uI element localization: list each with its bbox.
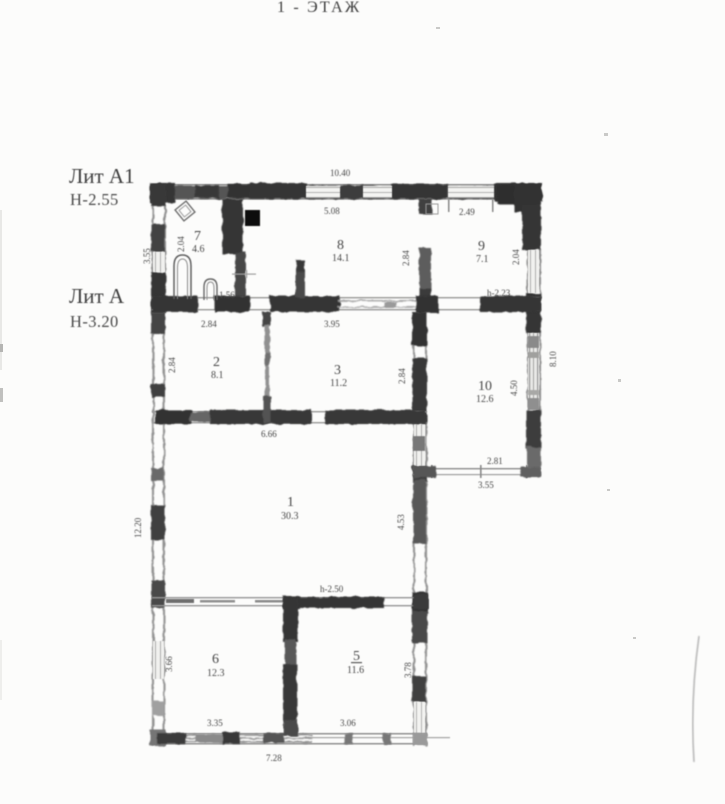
svg-text:8: 8 — [337, 238, 344, 253]
svg-text:10: 10 — [478, 379, 492, 394]
svg-text:30.3: 30.3 — [281, 511, 299, 522]
svg-text:2.81: 2.81 — [487, 456, 503, 466]
svg-text:Н-3.20: Н-3.20 — [70, 312, 119, 331]
svg-text:6: 6 — [212, 652, 219, 667]
svg-text:2.84: 2.84 — [401, 250, 411, 266]
svg-text:3.78: 3.78 — [403, 662, 413, 678]
svg-text:3.35: 3.35 — [207, 718, 223, 728]
svg-text:3.55: 3.55 — [142, 248, 152, 264]
svg-text:4.50: 4.50 — [509, 380, 519, 396]
svg-text:2.84: 2.84 — [397, 368, 407, 384]
svg-text:2.49: 2.49 — [459, 207, 475, 217]
svg-text:3.95: 3.95 — [324, 319, 340, 329]
svg-text:h-2.23: h-2.23 — [487, 288, 511, 298]
svg-text:4.6: 4.6 — [192, 244, 205, 255]
svg-text:14.1: 14.1 — [332, 253, 350, 264]
svg-text:6.66: 6.66 — [261, 429, 277, 439]
svg-text:12.3: 12.3 — [207, 668, 225, 679]
svg-text:3: 3 — [334, 363, 341, 378]
svg-text:2.04: 2.04 — [511, 249, 521, 265]
svg-text:5.08: 5.08 — [324, 206, 340, 216]
svg-text:7.1: 7.1 — [476, 254, 489, 265]
svg-text:1.56: 1.56 — [219, 290, 235, 300]
svg-text:8.10: 8.10 — [548, 351, 558, 367]
svg-text:10.40: 10.40 — [330, 168, 351, 178]
svg-text:2.04: 2.04 — [176, 236, 186, 252]
svg-text:7: 7 — [194, 229, 201, 244]
svg-text:3.66: 3.66 — [164, 656, 174, 672]
svg-text:12.6: 12.6 — [476, 394, 494, 405]
svg-text:2.84: 2.84 — [201, 319, 217, 329]
svg-text:Лит А: Лит А — [69, 284, 125, 308]
svg-text:3.55: 3.55 — [478, 480, 494, 490]
svg-text:1 - ЭТАЖ: 1 - ЭТАЖ — [277, 0, 361, 16]
svg-text:h-2.50: h-2.50 — [320, 584, 344, 594]
svg-text:5: 5 — [353, 649, 360, 664]
svg-text:3.06: 3.06 — [340, 718, 356, 728]
svg-text:8.1: 8.1 — [211, 370, 224, 381]
svg-text:12.20: 12.20 — [133, 517, 143, 538]
svg-text:2: 2 — [213, 355, 220, 370]
svg-text:Лит А1: Лит А1 — [69, 164, 135, 188]
svg-text:2.84: 2.84 — [167, 357, 177, 373]
svg-text:4.53: 4.53 — [396, 514, 406, 530]
svg-text:9: 9 — [478, 239, 485, 254]
svg-text:1: 1 — [287, 495, 294, 510]
svg-text:11.6: 11.6 — [347, 665, 364, 676]
svg-text:11.2: 11.2 — [330, 378, 347, 389]
svg-text:Н-2.55: Н-2.55 — [70, 190, 119, 209]
svg-text:7.28: 7.28 — [266, 753, 282, 763]
